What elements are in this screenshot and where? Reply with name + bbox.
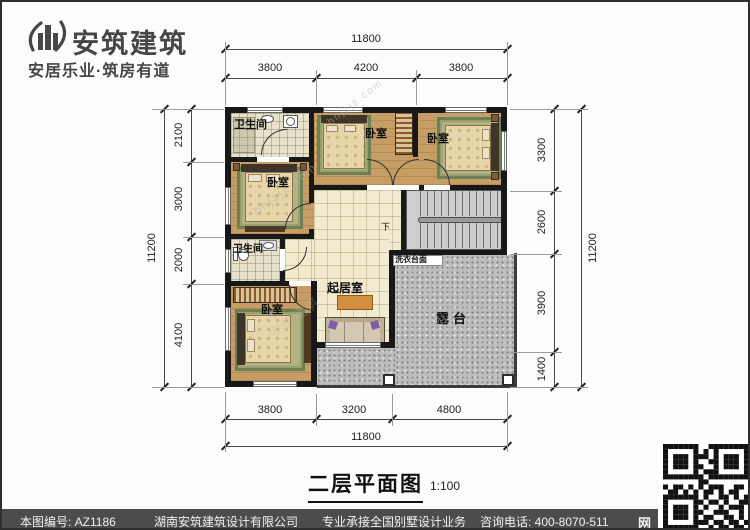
stairs-down-label: 下	[381, 223, 390, 233]
bed-pillow	[344, 125, 356, 132]
dim-line	[225, 446, 507, 447]
dim-top-seg3: 3800	[431, 62, 491, 74]
wall	[401, 190, 406, 250]
dim-left-total: 11200	[146, 226, 158, 270]
dim-extension-line	[183, 284, 224, 285]
closet	[395, 109, 413, 155]
brand-name: 安筑建筑	[72, 22, 188, 61]
room-label-bedroom-top-right: 卧室	[427, 133, 449, 145]
room-label-bedroom-top-mid: 卧室	[365, 128, 387, 140]
window	[225, 187, 231, 225]
window	[247, 107, 283, 113]
dim-extension-line	[316, 70, 317, 105]
plan-scale: 1:100	[430, 479, 460, 493]
wall	[309, 229, 314, 239]
window	[225, 249, 231, 273]
dim-right-total: 11200	[587, 226, 599, 270]
nightstand	[491, 172, 499, 180]
stair-treads-lower	[420, 223, 506, 248]
bed-pillow	[482, 129, 490, 141]
wall	[501, 107, 507, 255]
wall	[231, 157, 257, 162]
dim-extension-line	[152, 109, 224, 110]
bed-pillow	[482, 147, 490, 159]
dim-bottom-seg2: 3200	[324, 404, 384, 416]
bed-pillow	[247, 319, 255, 332]
dim-extension-line	[510, 387, 588, 388]
terrace-parapet	[317, 385, 517, 388]
wall	[413, 107, 418, 157]
brand-logo-icon	[24, 16, 70, 58]
dim-extension-line	[510, 191, 562, 192]
window	[325, 342, 381, 348]
stair-treads-upper	[420, 191, 506, 216]
dim-line	[225, 78, 507, 79]
bed-headboard	[491, 123, 499, 171]
dim-extension-line	[507, 392, 508, 452]
window	[445, 107, 487, 113]
bed-headboard	[241, 164, 297, 172]
dim-extension-line	[510, 109, 588, 110]
nightstand	[491, 114, 499, 122]
wall	[314, 185, 367, 190]
dim-right-seg1: 3300	[536, 128, 548, 172]
drawing-page: 安筑建筑 安居乐业·筑房有道 11800 3800 4200 3800 3800…	[0, 0, 750, 530]
dim-line	[581, 109, 582, 387]
dim-top-seg1: 3800	[240, 62, 300, 74]
coffee-table	[337, 295, 373, 310]
wall	[289, 157, 309, 162]
dim-left-seg1: 2100	[173, 113, 185, 157]
dim-extension-line	[152, 387, 224, 388]
bed-pillow	[248, 174, 262, 182]
bed-pillow	[247, 339, 255, 352]
washing-machine-drum	[286, 117, 295, 126]
terrace-post	[502, 374, 514, 386]
terrace-parapet	[514, 253, 517, 388]
dim-top-total: 11800	[336, 33, 396, 45]
bed-headboard	[237, 313, 245, 365]
dim-bottom-seg1: 3800	[240, 404, 300, 416]
wall	[450, 185, 501, 190]
wall	[231, 281, 289, 286]
dim-extension-line	[316, 394, 317, 426]
wall	[389, 255, 395, 342]
footer-service: 专业承接全国别墅设计业务	[322, 513, 466, 530]
sink	[263, 242, 274, 249]
wardrobe	[233, 287, 297, 303]
footer-phone: 咨询电话: 400-8070-511	[480, 513, 609, 530]
room-label-living: 起居室	[327, 282, 363, 295]
window	[253, 381, 297, 387]
dim-left-seg2: 3000	[173, 177, 185, 221]
room-label-bathroom-mid: 卫生间	[233, 244, 263, 255]
tv-bench	[304, 313, 311, 363]
window	[501, 131, 507, 171]
footer-drawing-number: 本图编号: AZ1186	[20, 513, 116, 530]
dim-line	[191, 109, 192, 387]
plan-title: 二层平面图	[308, 468, 423, 503]
footer-net-label: 网	[638, 513, 651, 530]
dim-line	[225, 419, 507, 420]
dim-line	[225, 49, 507, 50]
dim-right-seg2: 2600	[536, 200, 548, 244]
dim-right-seg3: 3900	[536, 281, 548, 325]
footer-company: 湖南安筑建筑设计有限公司	[154, 513, 298, 530]
dim-right-seg4: 1400	[536, 347, 548, 391]
dim-extension-line	[510, 352, 562, 353]
tv-bench	[245, 226, 285, 232]
dim-left-seg4: 4100	[173, 313, 185, 357]
dim-top-seg2: 4200	[336, 62, 396, 74]
room-label-bathroom-top: 卫生间	[234, 119, 267, 131]
floor-plan: 卫生间 卧室 卧室 卧室 卫生间 卧室 起居室 洗衣台面 露台 下	[225, 107, 521, 393]
dim-line	[554, 109, 555, 387]
window	[225, 307, 231, 351]
brand-tagline: 安居乐业·筑房有道	[28, 57, 170, 81]
dim-extension-line	[507, 42, 508, 105]
qr-code-panel	[658, 440, 750, 530]
dim-bottom-seg3: 4800	[419, 404, 479, 416]
qr-code	[663, 444, 749, 530]
dim-line	[164, 109, 165, 387]
dim-extension-line	[225, 42, 226, 105]
nightstand	[233, 163, 240, 171]
dim-extension-line	[392, 394, 393, 426]
dim-extension-line	[416, 70, 417, 105]
dim-extension-line	[225, 392, 226, 452]
wall	[280, 271, 285, 281]
dim-extension-line	[183, 237, 224, 238]
room-label-laundry: 洗衣台面	[395, 256, 427, 265]
wall	[419, 185, 424, 190]
wall	[231, 234, 309, 239]
dim-left-seg3: 2000	[173, 238, 185, 282]
terrace-post	[383, 374, 395, 386]
dim-bottom-total: 11800	[336, 431, 396, 443]
dim-extension-line	[183, 162, 224, 163]
dim-extension-line	[510, 254, 562, 255]
